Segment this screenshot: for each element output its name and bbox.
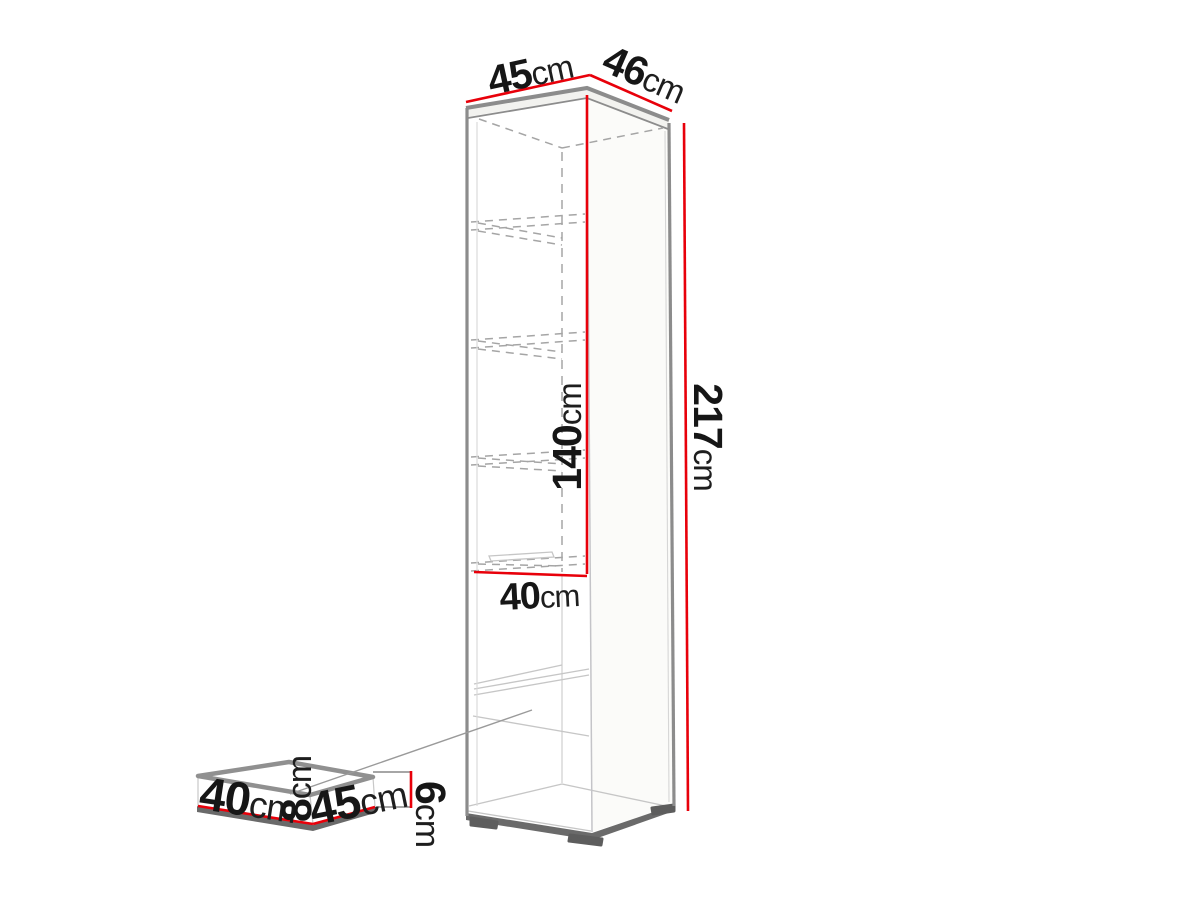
dimension-label-interior-width: 40cm (499, 573, 581, 619)
diagram-canvas: 45cm 46cm 217cm 140cm 40cm 40cm 8cm 45cm… (0, 0, 1200, 899)
cabinet-rail (489, 552, 554, 561)
dimension-label-insert-thickness: 6cm (406, 781, 454, 847)
cabinet-foot-back-right (652, 805, 674, 814)
furniture-dimension-diagram: 45cm 46cm 217cm 140cm 40cm 40cm 8cm 45cm… (0, 0, 1200, 899)
dimension-label-total-height: 217cm (685, 383, 731, 490)
cabinet-right-panel (588, 98, 673, 832)
dimension-label-interior-height: 140cm (544, 383, 590, 490)
